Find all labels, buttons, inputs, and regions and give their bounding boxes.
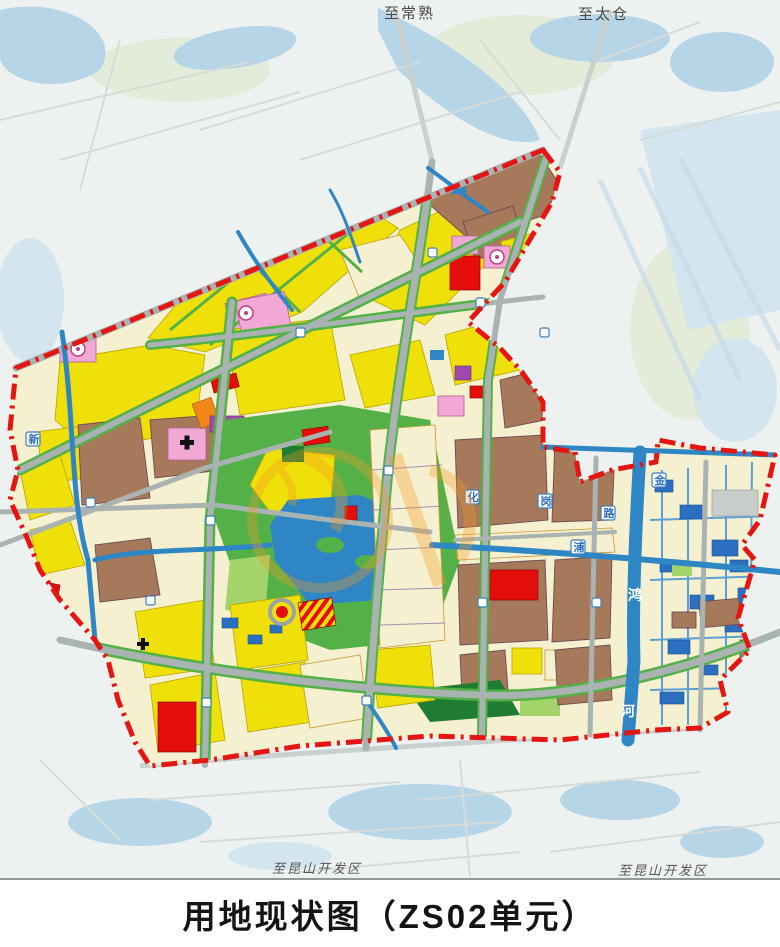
road-tag: 浦 bbox=[574, 540, 585, 554]
map-title: 用地现状图（ZS02单元） bbox=[183, 890, 598, 938]
direction-label-south-west: 至昆山开发区 bbox=[272, 858, 362, 877]
map-title-bar: 用地现状图（ZS02单元） bbox=[0, 880, 780, 947]
direction-label-north-west: 至常熟 bbox=[384, 2, 435, 23]
road-tag: 金 bbox=[654, 473, 667, 487]
road-tag: 路 bbox=[604, 506, 616, 520]
direction-label-south-east: 至昆山开发区 bbox=[618, 860, 708, 879]
direction-label-north-east: 至太仓 bbox=[578, 3, 629, 24]
river-name-char: 鸿 bbox=[628, 587, 642, 603]
map-canvas: 金 浦 路 岗 新 化 鸿 河 bbox=[0, 0, 780, 880]
map-graphic: 金 浦 路 岗 新 化 鸿 河 bbox=[0, 0, 780, 876]
river-name-char: 河 bbox=[621, 703, 635, 719]
road-tag: 新 bbox=[29, 432, 40, 446]
road-tag: 岗 bbox=[541, 494, 552, 508]
school-circle-icon bbox=[490, 250, 504, 264]
land-use-status-map-page: 金 浦 路 岗 新 化 鸿 河 bbox=[0, 0, 780, 947]
school-circle-icon bbox=[239, 306, 253, 320]
